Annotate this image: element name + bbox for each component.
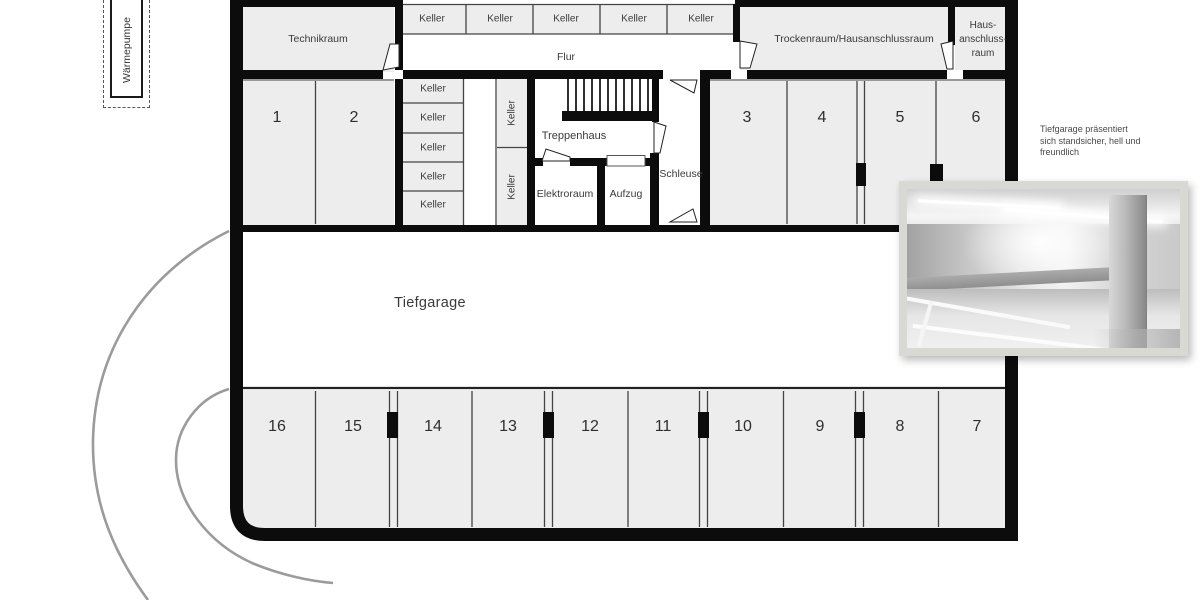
- room-label-tiefgarage: Tiefgarage: [394, 295, 466, 311]
- photo-caption-line-2: sich standsicher, hell und: [1040, 136, 1162, 148]
- photo-concrete-pillar: [1109, 195, 1147, 348]
- room-label-keller-stack-1: Keller: [420, 84, 446, 95]
- parking-space-13-label: 13: [499, 418, 517, 436]
- parking-space-7-label: 7: [973, 418, 982, 436]
- parking-space-16-label: 16: [268, 418, 286, 436]
- parking-space-15-label: 15: [344, 418, 362, 436]
- stairs: [562, 79, 652, 121]
- room-label-elektroraum: Elektroraum: [537, 188, 594, 200]
- room-label-keller-stack-3: Keller: [420, 143, 446, 154]
- parking-space-10-label: 10: [734, 418, 752, 436]
- room-label-keller-row-1: Keller: [419, 14, 445, 25]
- room-label-keller-row-5: Keller: [688, 14, 714, 25]
- room-label-schleuse: Schleuse: [659, 168, 702, 180]
- parking-space-14-label: 14: [424, 418, 442, 436]
- room-label-keller-stack-5: Keller: [420, 200, 446, 211]
- garage-photo-frame: [899, 181, 1188, 356]
- parking-space-2-label: 2: [350, 109, 359, 127]
- warmepumpe-label: Wärmepumpe: [121, 17, 133, 83]
- room-label-keller-side-2: Keller: [507, 174, 518, 200]
- photo-floor-shadow: [1093, 329, 1180, 348]
- garage-photo: [907, 189, 1180, 348]
- parking-space-3-label: 3: [743, 109, 752, 127]
- hausanschluss-line-1: Haus-: [959, 19, 1007, 33]
- room-label-keller-side-1: Keller: [507, 100, 518, 126]
- photo-caption: Tiefgarage präsentiert sich standsicher,…: [1040, 124, 1162, 159]
- floorplan-page: Wärmepumpe Technikraum Keller Keller Kel…: [0, 0, 1200, 600]
- parking-space-11-label: 11: [655, 418, 672, 436]
- room-fills: [242, 4, 1012, 528]
- room-label-hausanschlussraum: Haus- anschluss- raum: [959, 19, 1007, 61]
- photo-caption-line-1: Tiefgarage präsentiert: [1040, 124, 1162, 136]
- parking-space-1-label: 1: [273, 109, 282, 127]
- room-label-treppenhaus: Treppenhaus: [542, 130, 606, 142]
- room-label-aufzug: Aufzug: [610, 188, 643, 200]
- parking-space-5-label: 5: [896, 109, 905, 127]
- parking-space-9-label: 9: [816, 418, 825, 436]
- photo-caption-line-3: freundlich: [1040, 147, 1162, 159]
- room-label-keller-row-3: Keller: [553, 14, 579, 25]
- hausanschluss-line-3: raum: [959, 47, 1007, 61]
- room-label-keller-stack-2: Keller: [420, 113, 446, 124]
- room-label-flur: Flur: [557, 51, 575, 63]
- parking-space-12-label: 12: [581, 418, 599, 436]
- hausanschluss-line-2: anschluss-: [959, 33, 1007, 47]
- parking-space-4-label: 4: [818, 109, 827, 127]
- room-label-keller-row-4: Keller: [621, 14, 647, 25]
- room-label-keller-stack-4: Keller: [420, 172, 446, 183]
- room-label-technikraum: Technikraum: [288, 33, 348, 45]
- room-label-keller-row-2: Keller: [487, 14, 513, 25]
- room-label-trockenraum: Trockenraum/Hausanschlussraum: [774, 33, 934, 45]
- parking-space-6-label: 6: [972, 109, 981, 127]
- parking-space-8-label: 8: [896, 418, 905, 436]
